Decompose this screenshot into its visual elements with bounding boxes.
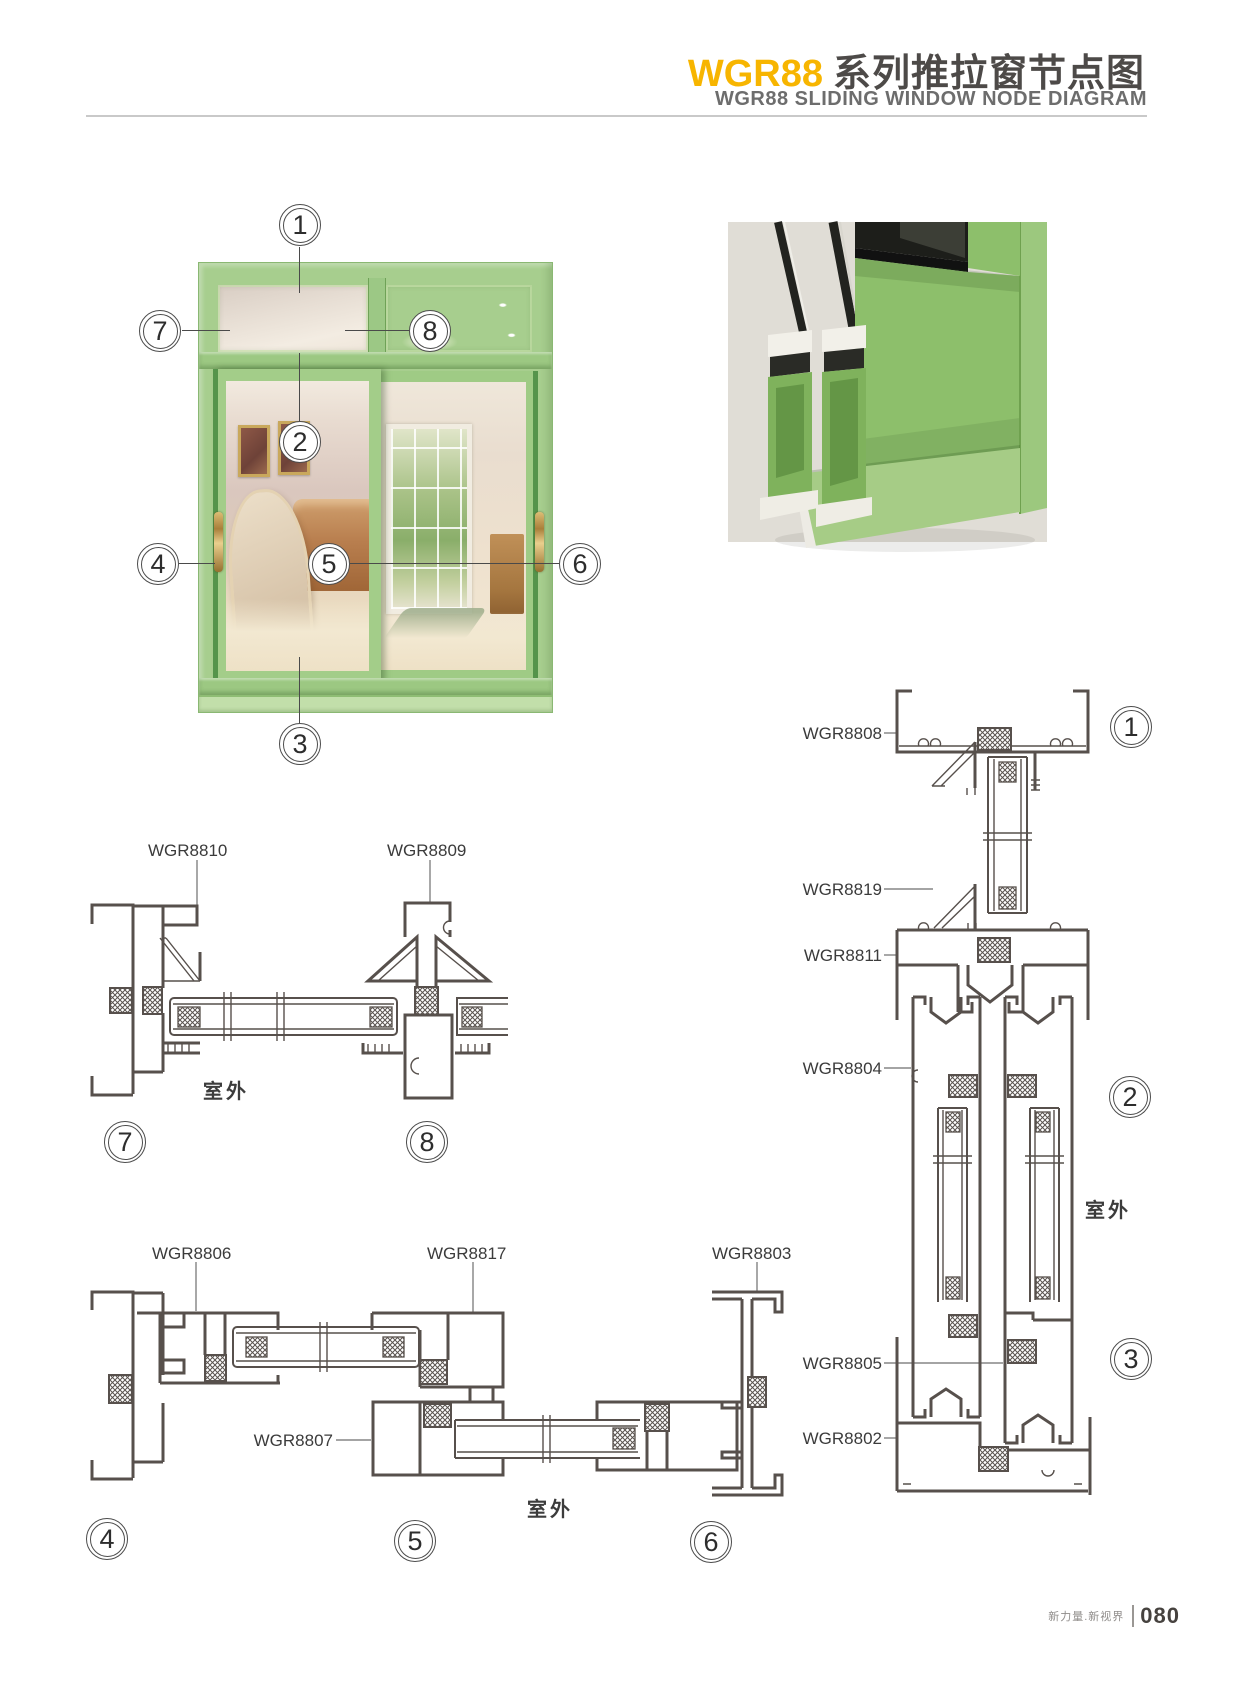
leader-callout-2 <box>299 353 300 421</box>
wood-cabinet <box>490 534 524 614</box>
node-4-5-6-drawing <box>92 1262 782 1495</box>
outdoor-label-123: 室外 <box>1085 1194 1131 1223</box>
header-divider <box>86 115 1147 117</box>
callout-window-6: 6 <box>559 543 601 585</box>
sash-right <box>365 371 537 681</box>
label-wgr8805: WGR8805 <box>790 1354 882 1374</box>
catalog-page: WGR88系列推拉窗节点图 WGR88 SLIDING WINDOW NODE … <box>0 0 1239 1681</box>
floor-reflection-left <box>226 599 369 671</box>
node-7-8-drawing <box>92 860 508 1098</box>
garden-door <box>386 424 472 614</box>
transom-bar <box>199 352 552 369</box>
leader-callout-5-6 <box>350 563 559 564</box>
label-wgr8811: WGR8811 <box>790 946 882 966</box>
callout-window-4: 4 <box>137 543 179 585</box>
profile-3d-render <box>728 222 1047 552</box>
label-wgr8810: WGR8810 <box>148 841 227 861</box>
sash-left <box>214 369 381 683</box>
label-wgr8806: WGR8806 <box>152 1244 231 1264</box>
leader-callout-1 <box>299 247 300 293</box>
label-wgr8817: WGR8817 <box>427 1244 506 1264</box>
callout-node-4: 4 <box>86 1518 128 1560</box>
callout-node-5: 5 <box>394 1520 436 1562</box>
transom-pane-right <box>386 285 532 352</box>
footer-separator <box>1132 1605 1134 1627</box>
callout-window-8: 8 <box>409 310 451 352</box>
label-wgr8804: WGR8804 <box>790 1059 882 1079</box>
transom-mullion <box>368 278 386 358</box>
label-wgr8808: WGR8808 <box>790 724 882 744</box>
label-wgr8803: WGR8803 <box>712 1244 791 1264</box>
callout-window-5: 5 <box>308 543 350 585</box>
callout-window-3: 3 <box>279 723 321 765</box>
callout-node-6: 6 <box>690 1521 732 1563</box>
label-wgr8819: WGR8819 <box>790 880 882 900</box>
callout-node-7: 7 <box>104 1121 146 1163</box>
leader-callout-4 <box>179 563 215 564</box>
node-1-2-3-drawing <box>884 691 1090 1495</box>
floor-reflection-right <box>376 612 526 670</box>
transom-pane-left <box>218 285 368 352</box>
callout-window-1: 1 <box>279 204 321 246</box>
callout-node-2: 2 <box>1109 1076 1151 1118</box>
callout-window-2: 2 <box>279 421 321 463</box>
callout-node-8: 8 <box>406 1121 448 1163</box>
leader-callout-8 <box>345 330 409 331</box>
callout-window-7: 7 <box>139 310 181 352</box>
leader-callout-3 <box>299 657 300 723</box>
interior-scene-right <box>376 382 526 670</box>
page-number: 080 <box>1140 1603 1180 1629</box>
bottom-track <box>199 678 552 695</box>
page-subtitle: WGR88 SLIDING WINDOW NODE DIAGRAM <box>715 88 1147 111</box>
outdoor-label-78: 室外 <box>203 1075 249 1104</box>
sash-handle-left <box>214 512 223 572</box>
callout-node-3: 3 <box>1110 1338 1152 1380</box>
label-wgr8807: WGR8807 <box>241 1431 333 1451</box>
label-wgr8802: WGR8802 <box>790 1429 882 1449</box>
footer-tagline: 新力量.新视界 <box>1048 1608 1124 1624</box>
label-wgr8809: WGR8809 <box>387 841 466 861</box>
leader-callout-7 <box>182 330 230 331</box>
window-sill <box>199 695 552 712</box>
outdoor-label-456: 室外 <box>527 1493 573 1522</box>
wall-painting-1 <box>238 425 270 477</box>
page-footer: 新力量.新视界 080 <box>980 1602 1180 1630</box>
callout-node-1: 1 <box>1110 706 1152 748</box>
